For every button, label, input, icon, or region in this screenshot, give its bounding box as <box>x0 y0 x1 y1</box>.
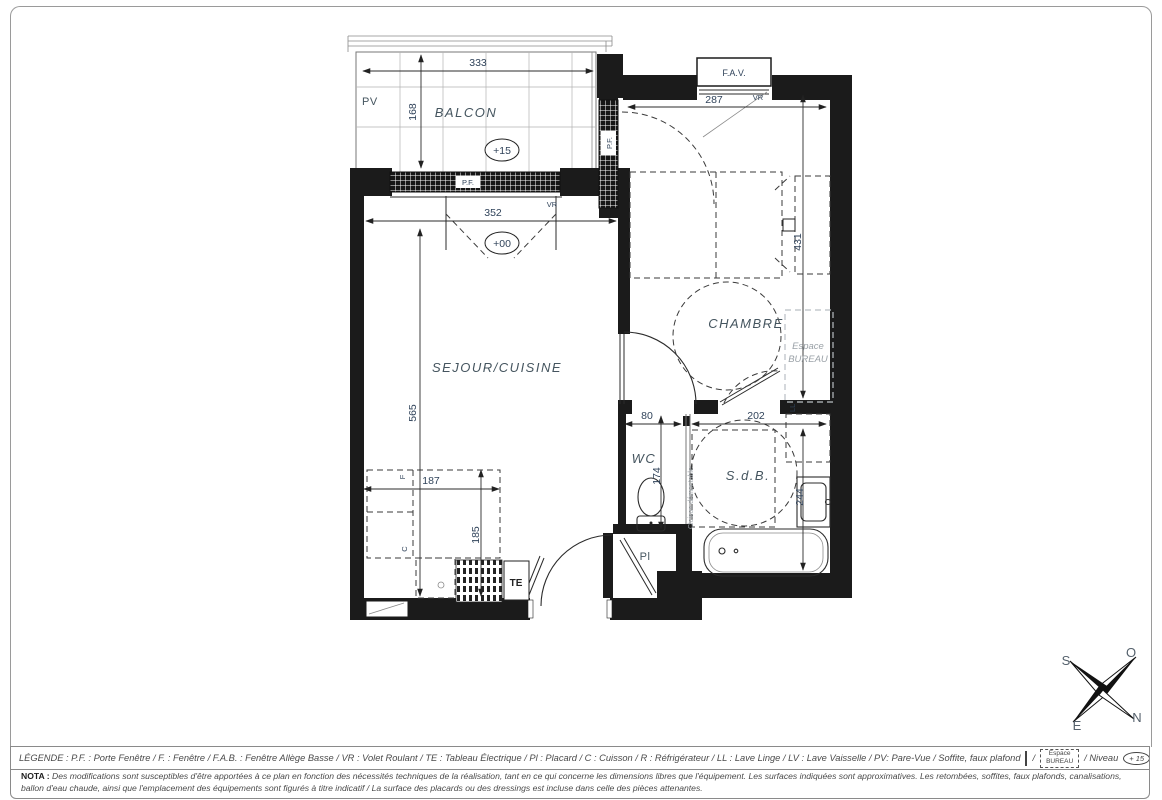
niveau-label: / Niveau <box>1084 753 1118 763</box>
niveau-value-oval: + 15 <box>1123 752 1150 765</box>
legend-bar: LÉGENDE : P.F. : Porte Fenêtre / F. : Fe… <box>10 746 1150 770</box>
espace-bureau-legend-box: Espace BUREAU <box>1040 749 1079 768</box>
nota-text: Des modifications sont susceptibles d'êt… <box>21 771 1122 793</box>
espace-bureau-legend-line1: Espace <box>1046 750 1073 759</box>
page-border <box>10 6 1152 747</box>
floor-plan-page: PV BALCON 333 168 +15 P.F. VR 352 +00 SE… <box>0 0 1162 800</box>
nota-bar: NOTA : Des modifications sont susceptibl… <box>10 769 1150 799</box>
soffit-hatch-swatch-icon <box>1025 751 1027 766</box>
nota-prefix: NOTA : <box>21 771 50 781</box>
espace-bureau-legend-line2: BUREAU <box>1046 758 1073 767</box>
legend-text: LÉGENDE : P.F. : Porte Fenêtre / F. : Fe… <box>19 753 1020 763</box>
legend-separator: / <box>1032 753 1035 763</box>
